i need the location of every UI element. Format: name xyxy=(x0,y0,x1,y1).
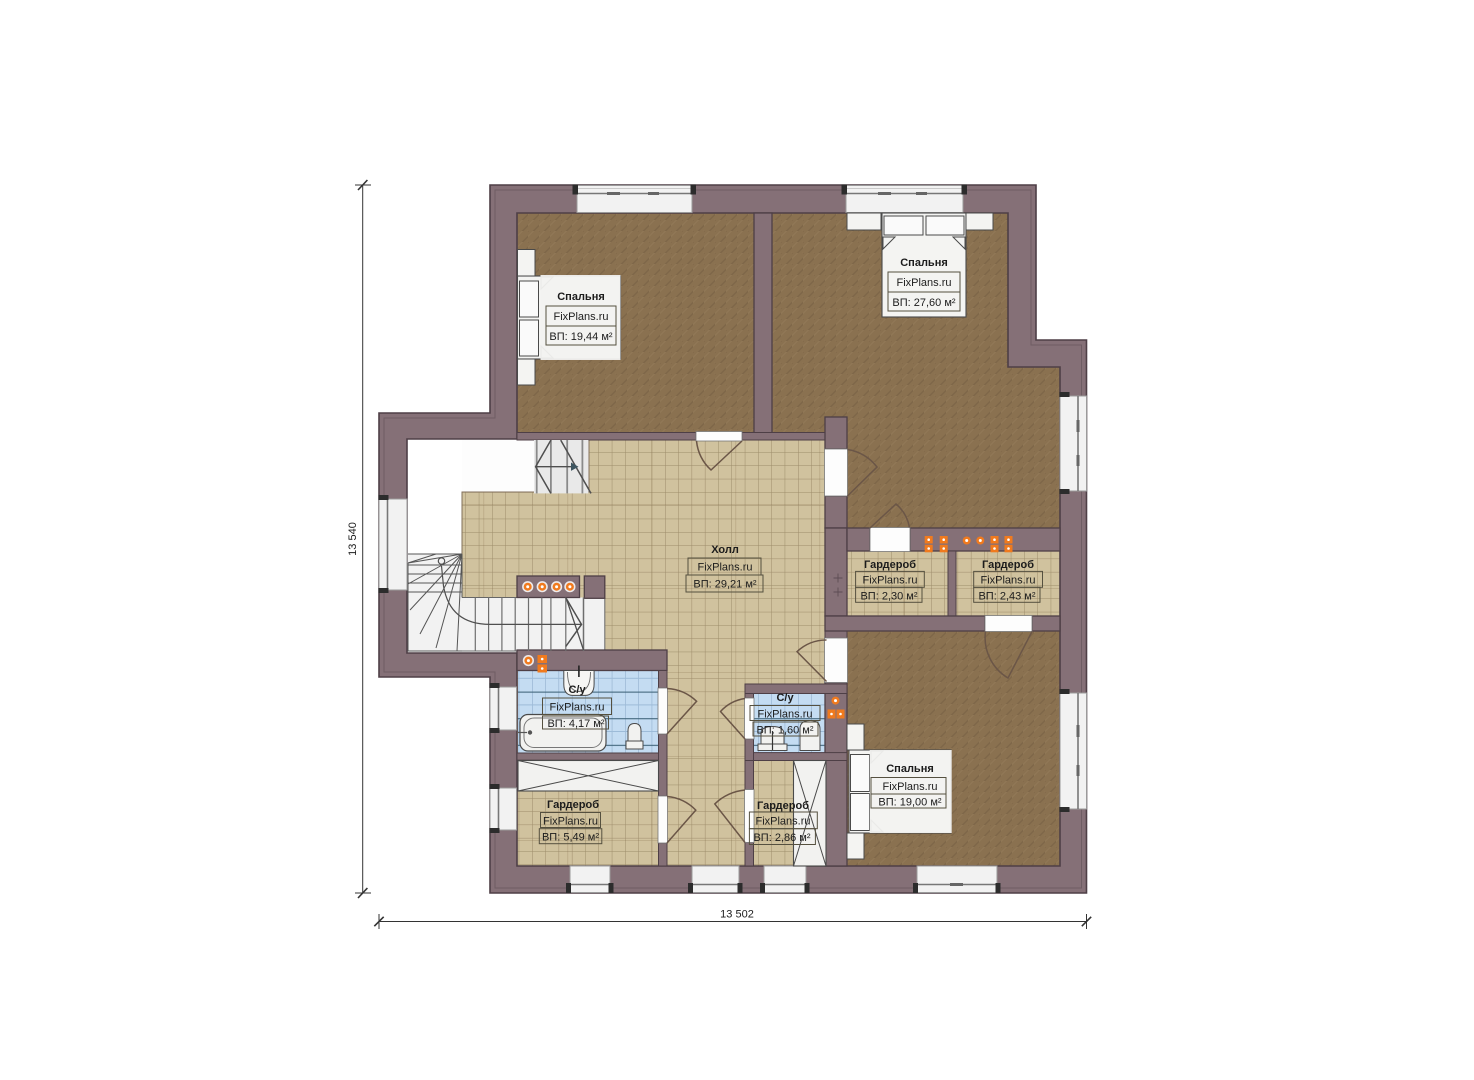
svg-text:ВП: 2,30 м²: ВП: 2,30 м² xyxy=(860,591,917,603)
svg-text:13 540: 13 540 xyxy=(347,522,359,556)
svg-text:С/у: С/у xyxy=(776,692,794,704)
svg-text:ВП: 19,00 м²: ВП: 19,00 м² xyxy=(878,797,942,809)
svg-text:ВП: 19,44 м²: ВП: 19,44 м² xyxy=(549,331,613,343)
svg-text:FixPlans.ru: FixPlans.ru xyxy=(553,311,608,323)
svg-text:ВП: 29,21 м²: ВП: 29,21 м² xyxy=(693,579,757,591)
svg-text:ВП: 1,60 м²: ВП: 1,60 м² xyxy=(756,725,813,737)
svg-text:FixPlans.ru: FixPlans.ru xyxy=(882,781,937,793)
svg-text:ВП: 5,49 м²: ВП: 5,49 м² xyxy=(542,832,599,844)
svg-text:FixPlans.ru: FixPlans.ru xyxy=(755,816,810,828)
svg-text:FixPlans.ru: FixPlans.ru xyxy=(697,562,752,574)
svg-text:FixPlans.ru: FixPlans.ru xyxy=(896,277,951,289)
svg-text:FixPlans.ru: FixPlans.ru xyxy=(757,709,812,721)
svg-text:Гардероб: Гардероб xyxy=(547,799,599,811)
svg-text:С/у: С/у xyxy=(568,684,586,696)
svg-text:Гардероб: Гардероб xyxy=(864,559,916,571)
svg-text:Спальня: Спальня xyxy=(557,291,605,303)
svg-text:FixPlans.ru: FixPlans.ru xyxy=(980,575,1035,587)
svg-text:Спальня: Спальня xyxy=(900,257,948,269)
svg-text:ВП: 2,86 м²: ВП: 2,86 м² xyxy=(753,832,810,844)
svg-text:13 502: 13 502 xyxy=(720,909,754,921)
svg-text:ВП: 27,60 м²: ВП: 27,60 м² xyxy=(892,297,956,309)
svg-text:Гардероб: Гардероб xyxy=(757,800,809,812)
svg-text:Спальня: Спальня xyxy=(886,763,934,775)
svg-text:Холл: Холл xyxy=(711,544,739,556)
svg-text:FixPlans.ru: FixPlans.ru xyxy=(862,575,917,587)
svg-text:ВП: 2,43 м²: ВП: 2,43 м² xyxy=(978,591,1035,603)
svg-text:ВП: 4,17 м²: ВП: 4,17 м² xyxy=(547,718,604,730)
svg-text:FixPlans.ru: FixPlans.ru xyxy=(549,702,604,714)
svg-text:Гардероб: Гардероб xyxy=(982,559,1034,571)
svg-text:FixPlans.ru: FixPlans.ru xyxy=(543,816,598,828)
